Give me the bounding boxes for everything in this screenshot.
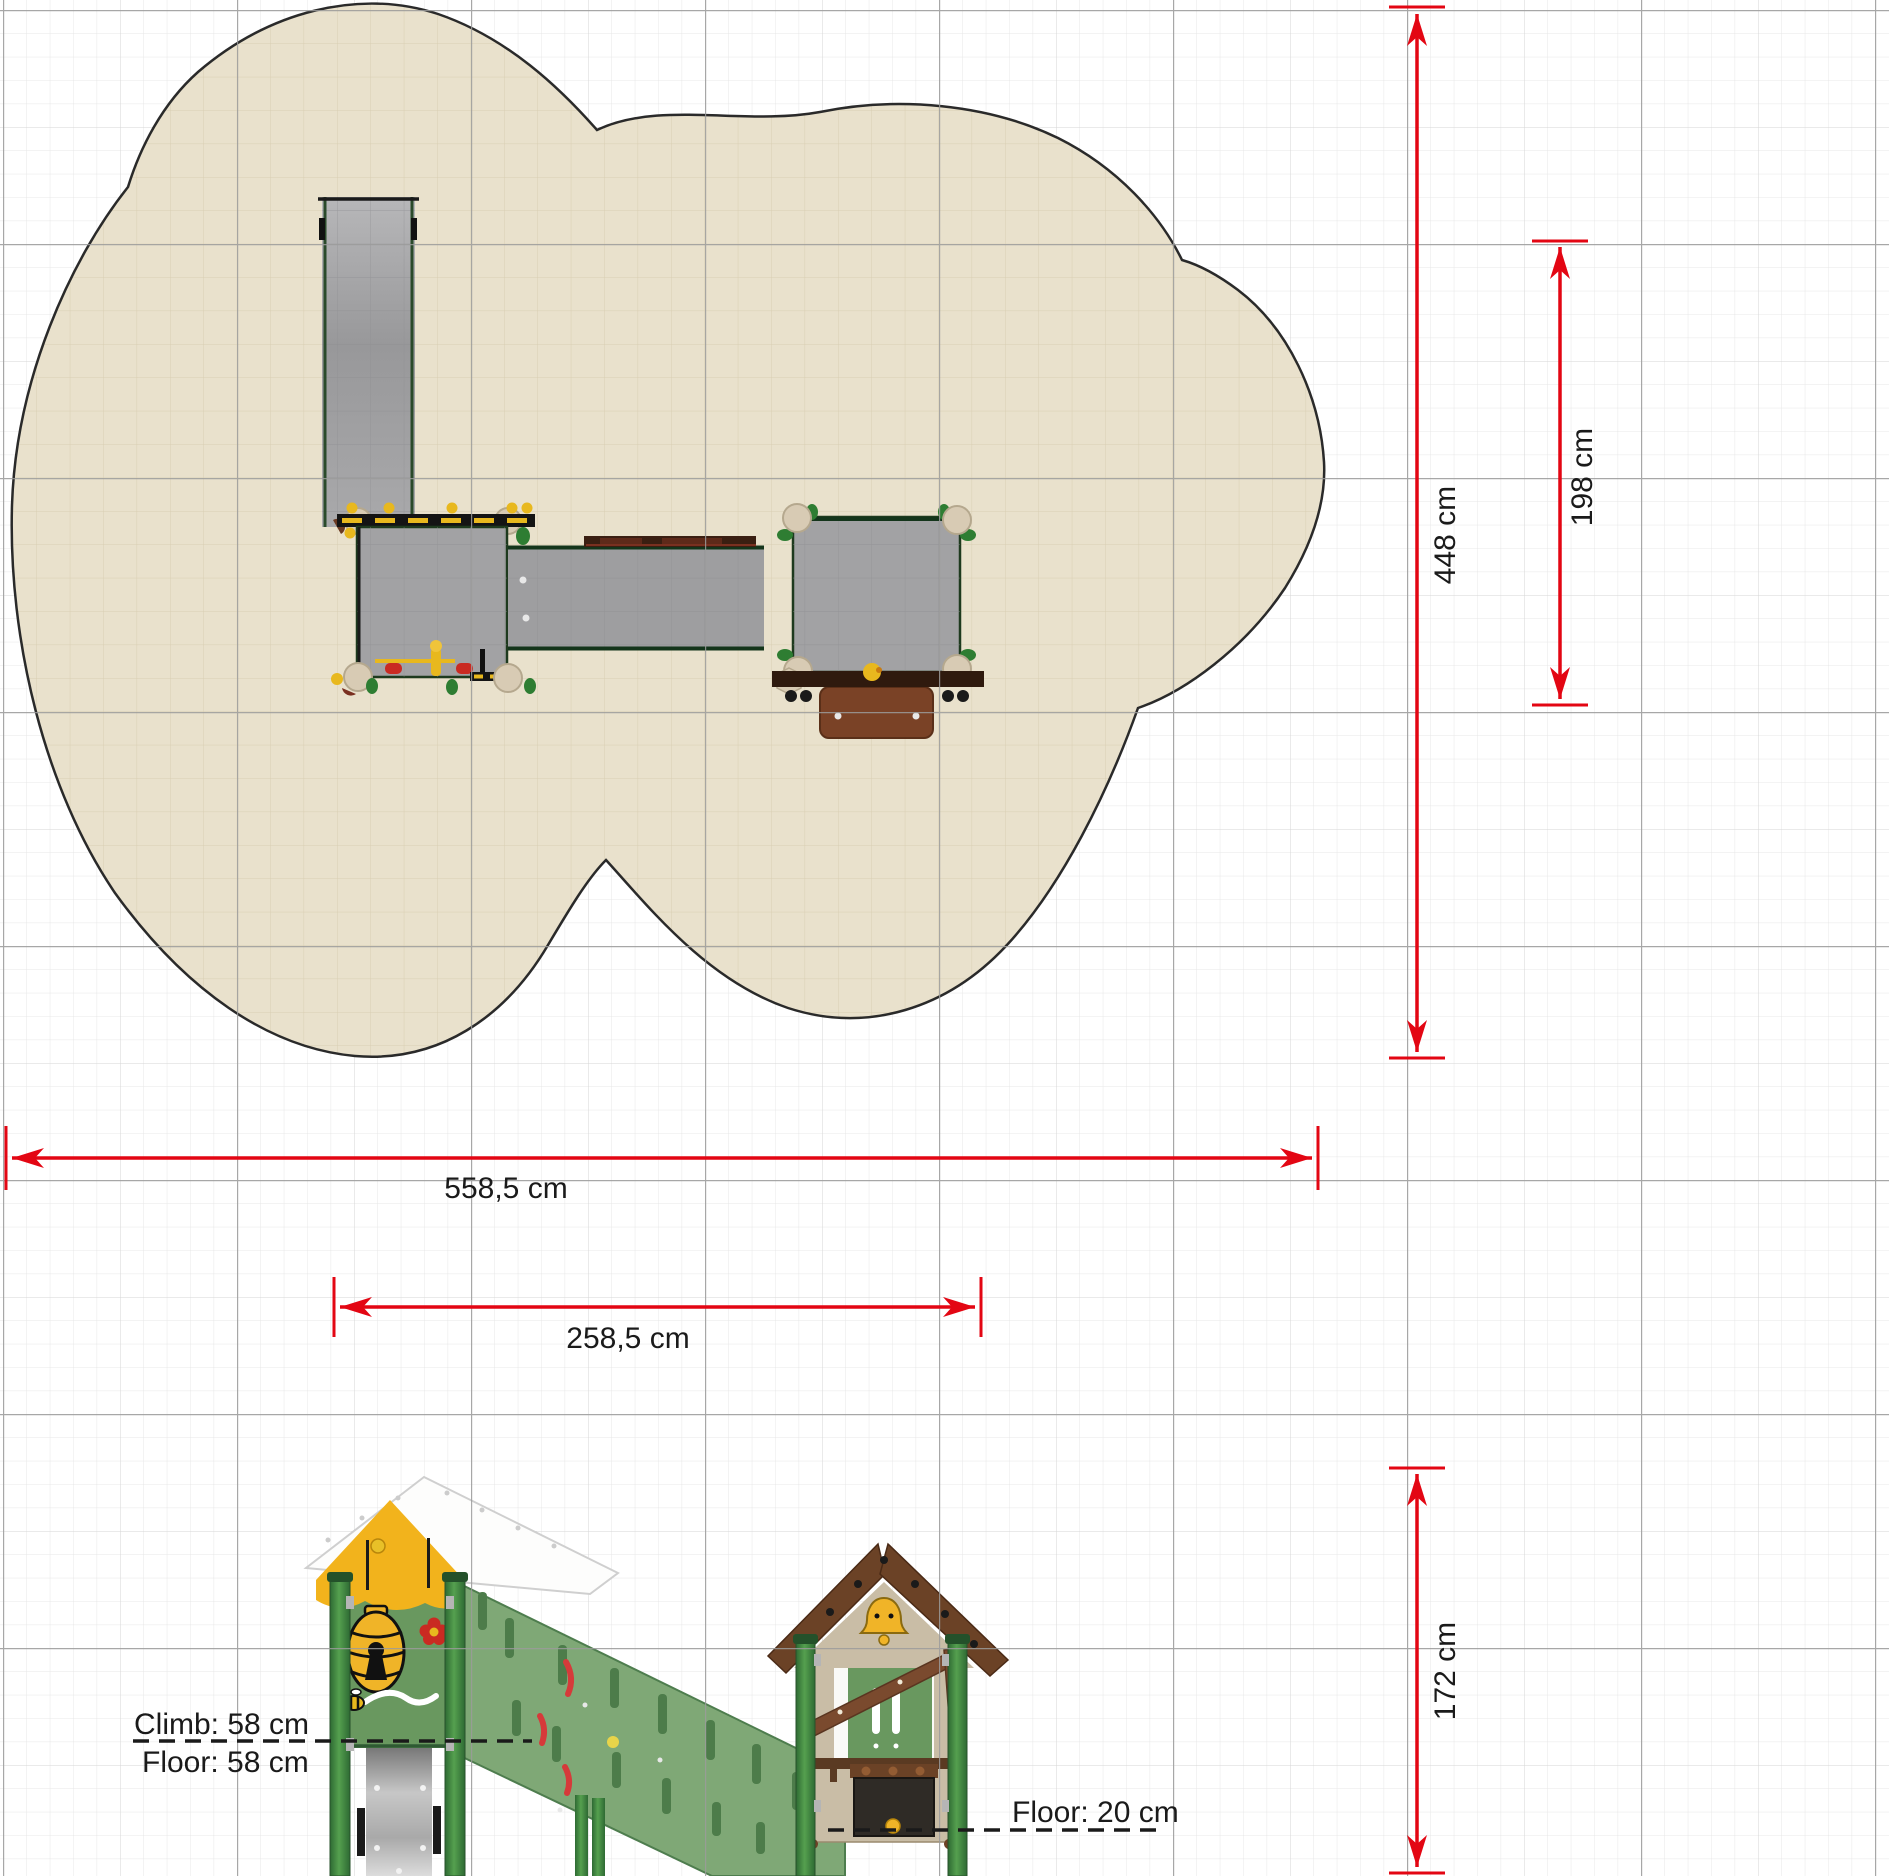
callout-label-floor-right: Floor: 20 cm: [1012, 1796, 1179, 1829]
dim-label-equipment-height: 172 cm: [1429, 1622, 1462, 1720]
grid-major: [0, 0, 1889, 1876]
dim-label-area-depth: 448 cm: [1429, 486, 1462, 584]
playground-technical-drawing: 558,5 cm 258,5 cm 448 cm 198 cm: [0, 0, 1889, 1876]
dim-label-equipment-width: 258,5 cm: [566, 1322, 689, 1355]
dim-label-total-width: 558,5 cm: [444, 1172, 567, 1205]
dim-label-area-depth-right: 198 cm: [1566, 428, 1599, 526]
callout-label-climb: Climb: 58 cm: [134, 1708, 309, 1741]
callout-label-floor-left: Floor: 58 cm: [142, 1746, 309, 1779]
